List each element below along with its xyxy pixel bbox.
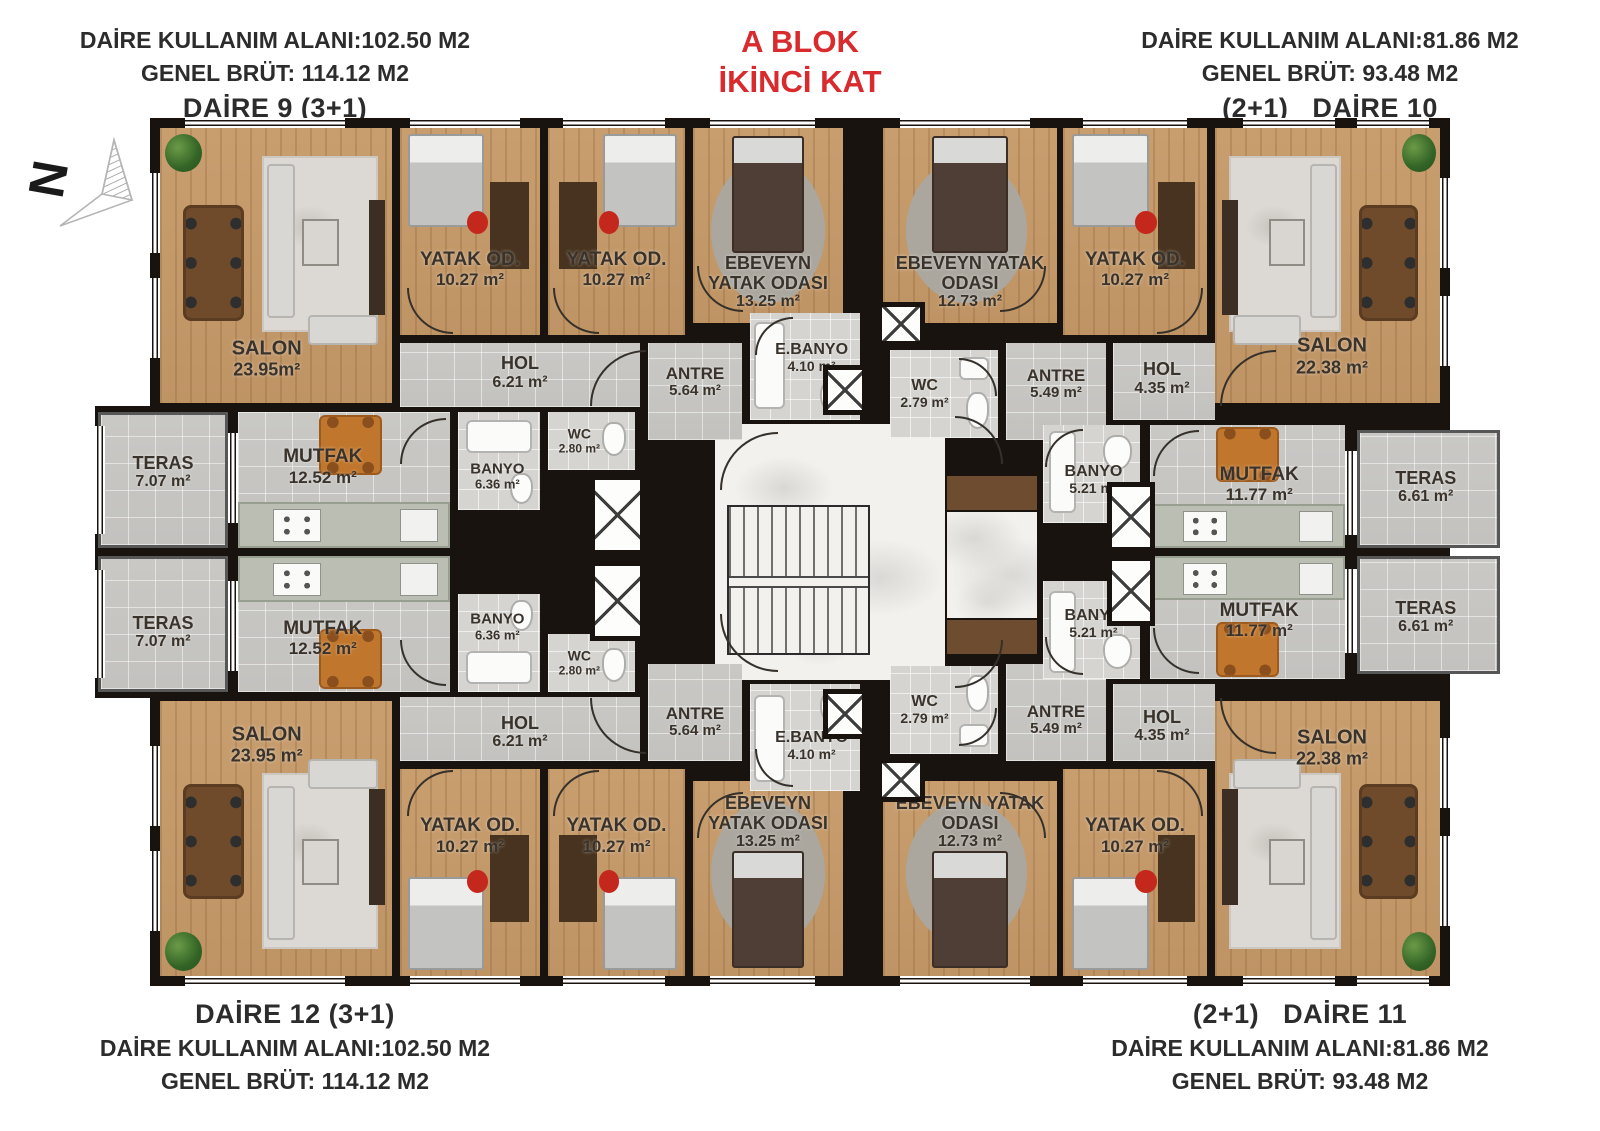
kitchen-counter xyxy=(1150,504,1345,548)
toilet xyxy=(510,473,533,504)
room-d9-salon: SALON23.95m² xyxy=(160,128,392,403)
shaft-icon xyxy=(590,561,645,641)
room-area: 4.35 m² xyxy=(1114,380,1210,398)
coffee-table xyxy=(302,219,339,266)
plant-icon xyxy=(1402,134,1436,173)
room-name: HOL xyxy=(1114,359,1210,379)
room-area: 6.21 m² xyxy=(407,733,633,751)
kitchen-counter xyxy=(1150,556,1345,600)
window xyxy=(563,118,665,128)
room-d12-wc: WC2.80 m² xyxy=(548,634,635,692)
window xyxy=(1243,976,1335,986)
shaft-icon xyxy=(823,689,867,739)
toilet xyxy=(602,422,626,456)
sofa xyxy=(1233,759,1301,789)
room-name: SALON xyxy=(160,724,376,746)
gross-area-text: GENEL BRÜT: 93.48 M2 xyxy=(1090,57,1570,90)
window xyxy=(1440,296,1450,366)
room-name: TERAS xyxy=(105,613,222,633)
sofa xyxy=(308,759,378,789)
coffee-table xyxy=(1269,219,1305,266)
coffee-table xyxy=(1269,839,1305,886)
window xyxy=(900,976,1030,986)
plant-icon xyxy=(165,932,202,971)
room-name: TERAS xyxy=(1361,598,1490,618)
window xyxy=(1357,118,1429,128)
window xyxy=(1345,569,1357,653)
kitchen-table xyxy=(1216,622,1278,676)
room-name: TERAS xyxy=(105,453,222,473)
window xyxy=(1243,118,1335,128)
room-d10-teras: TERAS6.61 m² xyxy=(1357,430,1500,548)
desk-chair xyxy=(467,211,488,234)
floor-plan-sheet: DAİRE KULLANIM ALANI:102.50 M2 GENEL BRÜ… xyxy=(0,0,1600,1131)
window xyxy=(95,570,105,678)
room-area: 5.49 m² xyxy=(1009,721,1103,738)
window xyxy=(1440,836,1450,926)
shaft-icon xyxy=(823,365,867,415)
kitchen-table xyxy=(319,629,383,689)
shaft-icon xyxy=(877,758,925,802)
shaft-icon xyxy=(877,302,925,346)
tv-unit xyxy=(369,200,385,316)
room-name: YATAK OD. xyxy=(1067,815,1202,836)
bed xyxy=(1072,877,1150,970)
tv-unit xyxy=(1222,789,1238,905)
room-d10-hol: HOL4.35 m² xyxy=(1113,343,1215,420)
room-name: ANTRE xyxy=(651,704,739,723)
window xyxy=(1440,738,1450,808)
room-area: 7.07 m² xyxy=(105,633,222,651)
room-label: HOL4.35 m² xyxy=(1114,359,1210,397)
toilet xyxy=(1103,634,1132,669)
gross-area-text: GENEL BRÜT: 114.12 M2 xyxy=(60,1065,530,1098)
room-label: ANTRE5.49 m² xyxy=(1009,366,1103,402)
room-name: HOL xyxy=(1114,707,1210,727)
toilet xyxy=(510,600,533,631)
window xyxy=(410,976,520,986)
room-label: TERAS6.61 m² xyxy=(1361,598,1490,636)
room-d12-banyo: BANYO6.36 m² xyxy=(458,594,540,692)
sofa xyxy=(267,786,295,940)
shaft-icon xyxy=(1107,482,1155,552)
dining-table xyxy=(1359,205,1418,321)
room-name: TERAS xyxy=(1361,468,1490,488)
tv-unit xyxy=(369,789,385,905)
window xyxy=(185,976,345,986)
kitchen-counter xyxy=(238,502,450,548)
room-area: 6.36 m² xyxy=(459,628,536,643)
floor-plan-canvas: SALON23.95m²SALON23.95 m²YATAK OD.10.27 … xyxy=(95,118,1505,985)
unit-name-text: (2+1) DAİRE 11 xyxy=(1060,996,1540,1032)
window xyxy=(410,118,520,128)
usage-area-text: DAİRE KULLANIM ALANI:102.50 M2 xyxy=(40,24,510,57)
room-area: 7.07 m² xyxy=(105,473,222,491)
sofa xyxy=(267,164,295,318)
room-d9-teras: TERAS7.07 m² xyxy=(98,412,228,548)
desk-chair xyxy=(599,211,620,234)
sofa xyxy=(308,315,378,345)
threshold xyxy=(947,476,1037,510)
coffee-table xyxy=(302,839,339,886)
dining-table xyxy=(183,784,243,900)
desk xyxy=(1158,182,1195,269)
desk xyxy=(490,182,529,269)
window xyxy=(563,976,665,986)
corridor-marble xyxy=(947,512,1037,618)
room-area: 10.27 m² xyxy=(1067,270,1202,289)
room-d9-wc: WC2.80 m² xyxy=(548,412,635,470)
room-name: YATAK OD. xyxy=(404,815,536,836)
unit-info-daire-10: DAİRE KULLANIM ALANI:81.86 M2 GENEL BRÜT… xyxy=(1090,24,1570,126)
room-d9-antre: ANTRE5.64 m² xyxy=(648,343,742,440)
kitchen-table xyxy=(319,415,383,475)
bath-fixture xyxy=(466,651,532,684)
usage-area-text: DAİRE KULLANIM ALANI:81.86 M2 xyxy=(1060,1032,1540,1065)
window xyxy=(150,851,160,931)
room-label: TERAS7.07 m² xyxy=(105,453,222,491)
dining-table xyxy=(183,205,243,321)
room-name: MUTFAK xyxy=(1168,600,1345,621)
wardrobe xyxy=(843,781,883,976)
room-area: 5.49 m² xyxy=(1009,385,1103,402)
room-d9-banyo: BANYO6.36 m² xyxy=(458,412,540,510)
room-label: TERAS6.61 m² xyxy=(1361,468,1490,506)
room-area: 10.27 m² xyxy=(404,270,536,289)
desk xyxy=(1158,835,1195,922)
room-d11-teras: TERAS6.61 m² xyxy=(1357,556,1500,674)
shaft-icon xyxy=(1107,556,1155,626)
plant-icon xyxy=(165,134,202,173)
usage-area-text: DAİRE KULLANIM ALANI:81.86 M2 xyxy=(1090,24,1570,57)
room-name: ANTRE xyxy=(1009,702,1103,721)
double-bed xyxy=(732,851,804,968)
room-area: 6.61 m² xyxy=(1361,488,1490,506)
tv-unit xyxy=(1222,200,1238,316)
window xyxy=(228,433,238,523)
plant-icon xyxy=(1402,932,1436,971)
window xyxy=(710,118,815,128)
desk xyxy=(559,835,597,922)
desk-chair xyxy=(467,870,488,893)
window xyxy=(150,746,160,826)
double-bed xyxy=(932,136,1009,253)
room-label: ANTRE5.64 m² xyxy=(651,364,739,400)
usage-area-text: DAİRE KULLANIM ALANI:102.50 M2 xyxy=(60,1032,530,1065)
window xyxy=(1440,178,1450,268)
unit-info-daire-12: DAİRE 12 (3+1) DAİRE KULLANIM ALANI:102.… xyxy=(60,996,530,1098)
room-area: 23.95m² xyxy=(160,360,376,380)
unit-info-daire-11: (2+1) DAİRE 11 DAİRE KULLANIM ALANI:81.8… xyxy=(1060,996,1540,1098)
sofa xyxy=(1233,315,1301,345)
room-d12-teras: TERAS7.07 m² xyxy=(98,556,228,692)
toilet xyxy=(1103,435,1132,470)
shaft-icon xyxy=(590,475,645,555)
room-area: 10.27 m² xyxy=(552,270,681,289)
kitchen-table xyxy=(1216,427,1278,481)
floor-name-text: İKİNCİ KAT xyxy=(680,62,920,102)
window xyxy=(150,173,160,253)
window xyxy=(1345,451,1357,535)
double-bed xyxy=(932,851,1009,968)
desk-chair xyxy=(1135,870,1157,893)
room-name: ANTRE xyxy=(651,364,739,383)
gross-area-text: GENEL BRÜT: 93.48 M2 xyxy=(1060,1065,1540,1098)
room-area: 11.77 m² xyxy=(1168,485,1345,504)
unit-name-text: DAİRE 12 (3+1) xyxy=(60,996,530,1032)
window xyxy=(95,426,105,534)
window xyxy=(228,581,238,671)
double-bed xyxy=(732,136,804,253)
window xyxy=(710,976,815,986)
room-name: HOL xyxy=(407,353,633,373)
gross-area-text: GENEL BRÜT: 114.12 M2 xyxy=(40,57,510,90)
unit-info-daire-9: DAİRE KULLANIM ALANI:102.50 M2 GENEL BRÜ… xyxy=(40,24,510,126)
window xyxy=(1083,976,1187,986)
window xyxy=(150,278,160,358)
room-area: 6.61 m² xyxy=(1361,618,1490,636)
room-area: 4.35 m² xyxy=(1114,727,1210,745)
room-d11-hol: HOL4.35 m² xyxy=(1113,684,1215,761)
room-label: TERAS7.07 m² xyxy=(105,613,222,651)
room-area: 2.79 m² xyxy=(890,395,975,411)
room-name: ANTRE xyxy=(1009,366,1103,385)
kitchen-counter xyxy=(238,556,450,602)
window xyxy=(1357,976,1429,986)
dining-table xyxy=(1359,784,1418,900)
desk-chair xyxy=(1135,211,1157,234)
room-label: ANTRE5.64 m² xyxy=(651,704,739,740)
room-label: HOL4.35 m² xyxy=(1114,707,1210,745)
window xyxy=(900,118,1030,128)
block-name-text: A BLOK xyxy=(680,22,920,62)
window xyxy=(185,118,345,128)
wardrobe xyxy=(843,128,883,323)
room-d12-salon: SALON23.95 m² xyxy=(160,701,392,976)
room-d12-antre: ANTRE5.64 m² xyxy=(648,664,742,761)
plan-title: A BLOK İKİNCİ KAT xyxy=(680,22,920,102)
sofa xyxy=(1310,164,1337,318)
desk xyxy=(559,182,597,269)
sofa xyxy=(1310,786,1337,940)
bath-fixture xyxy=(466,420,532,453)
desk xyxy=(490,835,529,922)
room-name: YATAK OD. xyxy=(552,815,681,836)
toilet xyxy=(602,648,626,682)
room-area: 5.64 m² xyxy=(651,723,739,740)
window xyxy=(1083,118,1187,128)
room-label: ANTRE5.49 m² xyxy=(1009,702,1103,738)
room-area: 5.64 m² xyxy=(651,383,739,400)
